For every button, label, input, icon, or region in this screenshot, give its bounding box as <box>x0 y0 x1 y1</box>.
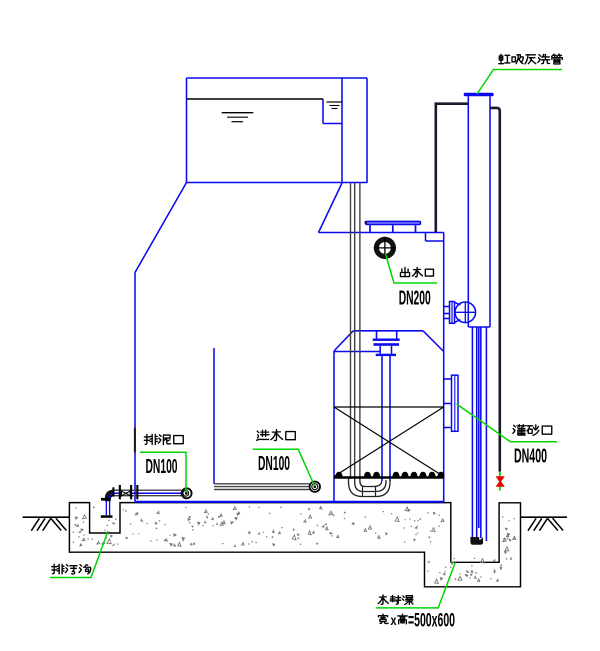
svg-text:x: x <box>391 612 397 628</box>
svg-text:DN200: DN200 <box>399 286 431 309</box>
svg-text:=500x600: =500x600 <box>408 611 455 632</box>
svg-text:DN100: DN100 <box>146 455 178 478</box>
svg-text:DN100: DN100 <box>258 452 290 475</box>
svg-text:DN400: DN400 <box>514 445 547 468</box>
